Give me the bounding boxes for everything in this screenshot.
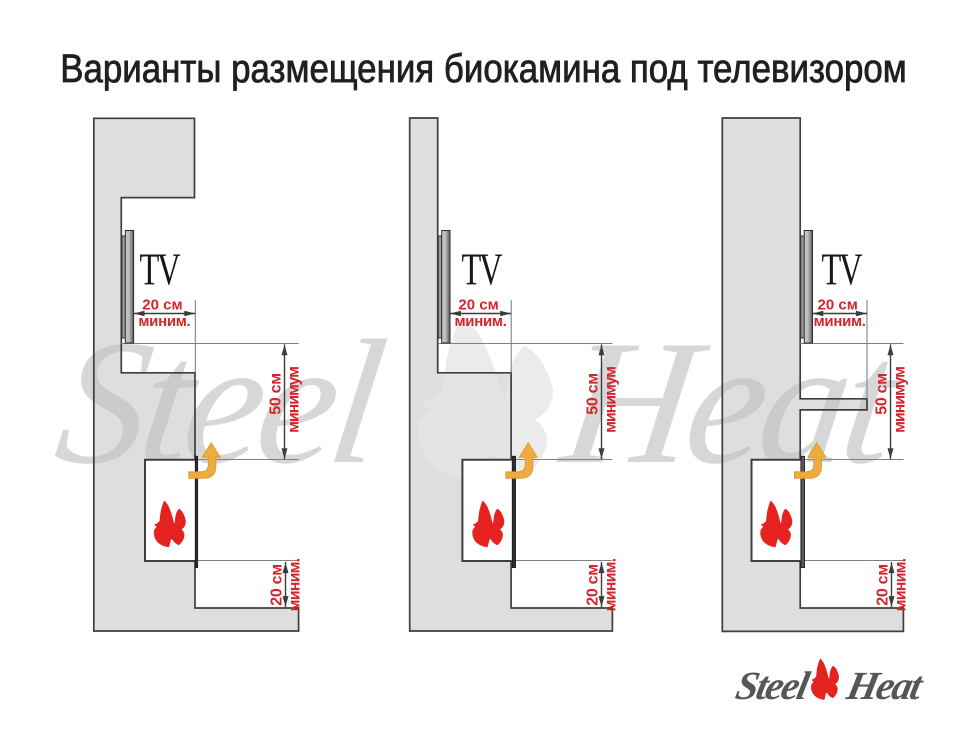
svg-text:50 см: 50 см bbox=[268, 373, 285, 414]
svg-text:Варианты размещения биокамина: Варианты размещения биокамина под телеви… bbox=[60, 46, 907, 91]
svg-text:миним.: миним. bbox=[287, 558, 304, 611]
svg-text:минимум: минимум bbox=[603, 367, 620, 433]
svg-text:TV: TV bbox=[822, 245, 863, 294]
svg-text:20 см: 20 см bbox=[585, 564, 602, 605]
svg-text:миним.: миним. bbox=[603, 558, 620, 611]
svg-text:минимум: минимум bbox=[286, 367, 303, 433]
svg-text:Heat: Heat bbox=[842, 663, 928, 708]
svg-text:минимум: минимум bbox=[892, 367, 909, 433]
svg-text:50 см: 50 см bbox=[585, 373, 602, 414]
svg-text:20 см: 20 см bbox=[269, 564, 286, 605]
svg-text:Steel: Steel bbox=[732, 663, 814, 708]
svg-text:20 см: 20 см bbox=[458, 297, 498, 314]
svg-text:миним.: миним. bbox=[893, 558, 910, 611]
svg-text:TV: TV bbox=[462, 245, 503, 294]
svg-text:миним.: миним. bbox=[138, 313, 190, 330]
svg-text:TV: TV bbox=[140, 245, 181, 294]
svg-text:50 см: 50 см bbox=[874, 373, 891, 414]
svg-text:Steel: Steel bbox=[47, 304, 393, 501]
svg-text:миним.: миним. bbox=[455, 313, 507, 330]
svg-text:20 см: 20 см bbox=[818, 297, 858, 314]
svg-text:20 см: 20 см bbox=[875, 564, 892, 605]
svg-text:20 см: 20 см bbox=[142, 297, 182, 314]
